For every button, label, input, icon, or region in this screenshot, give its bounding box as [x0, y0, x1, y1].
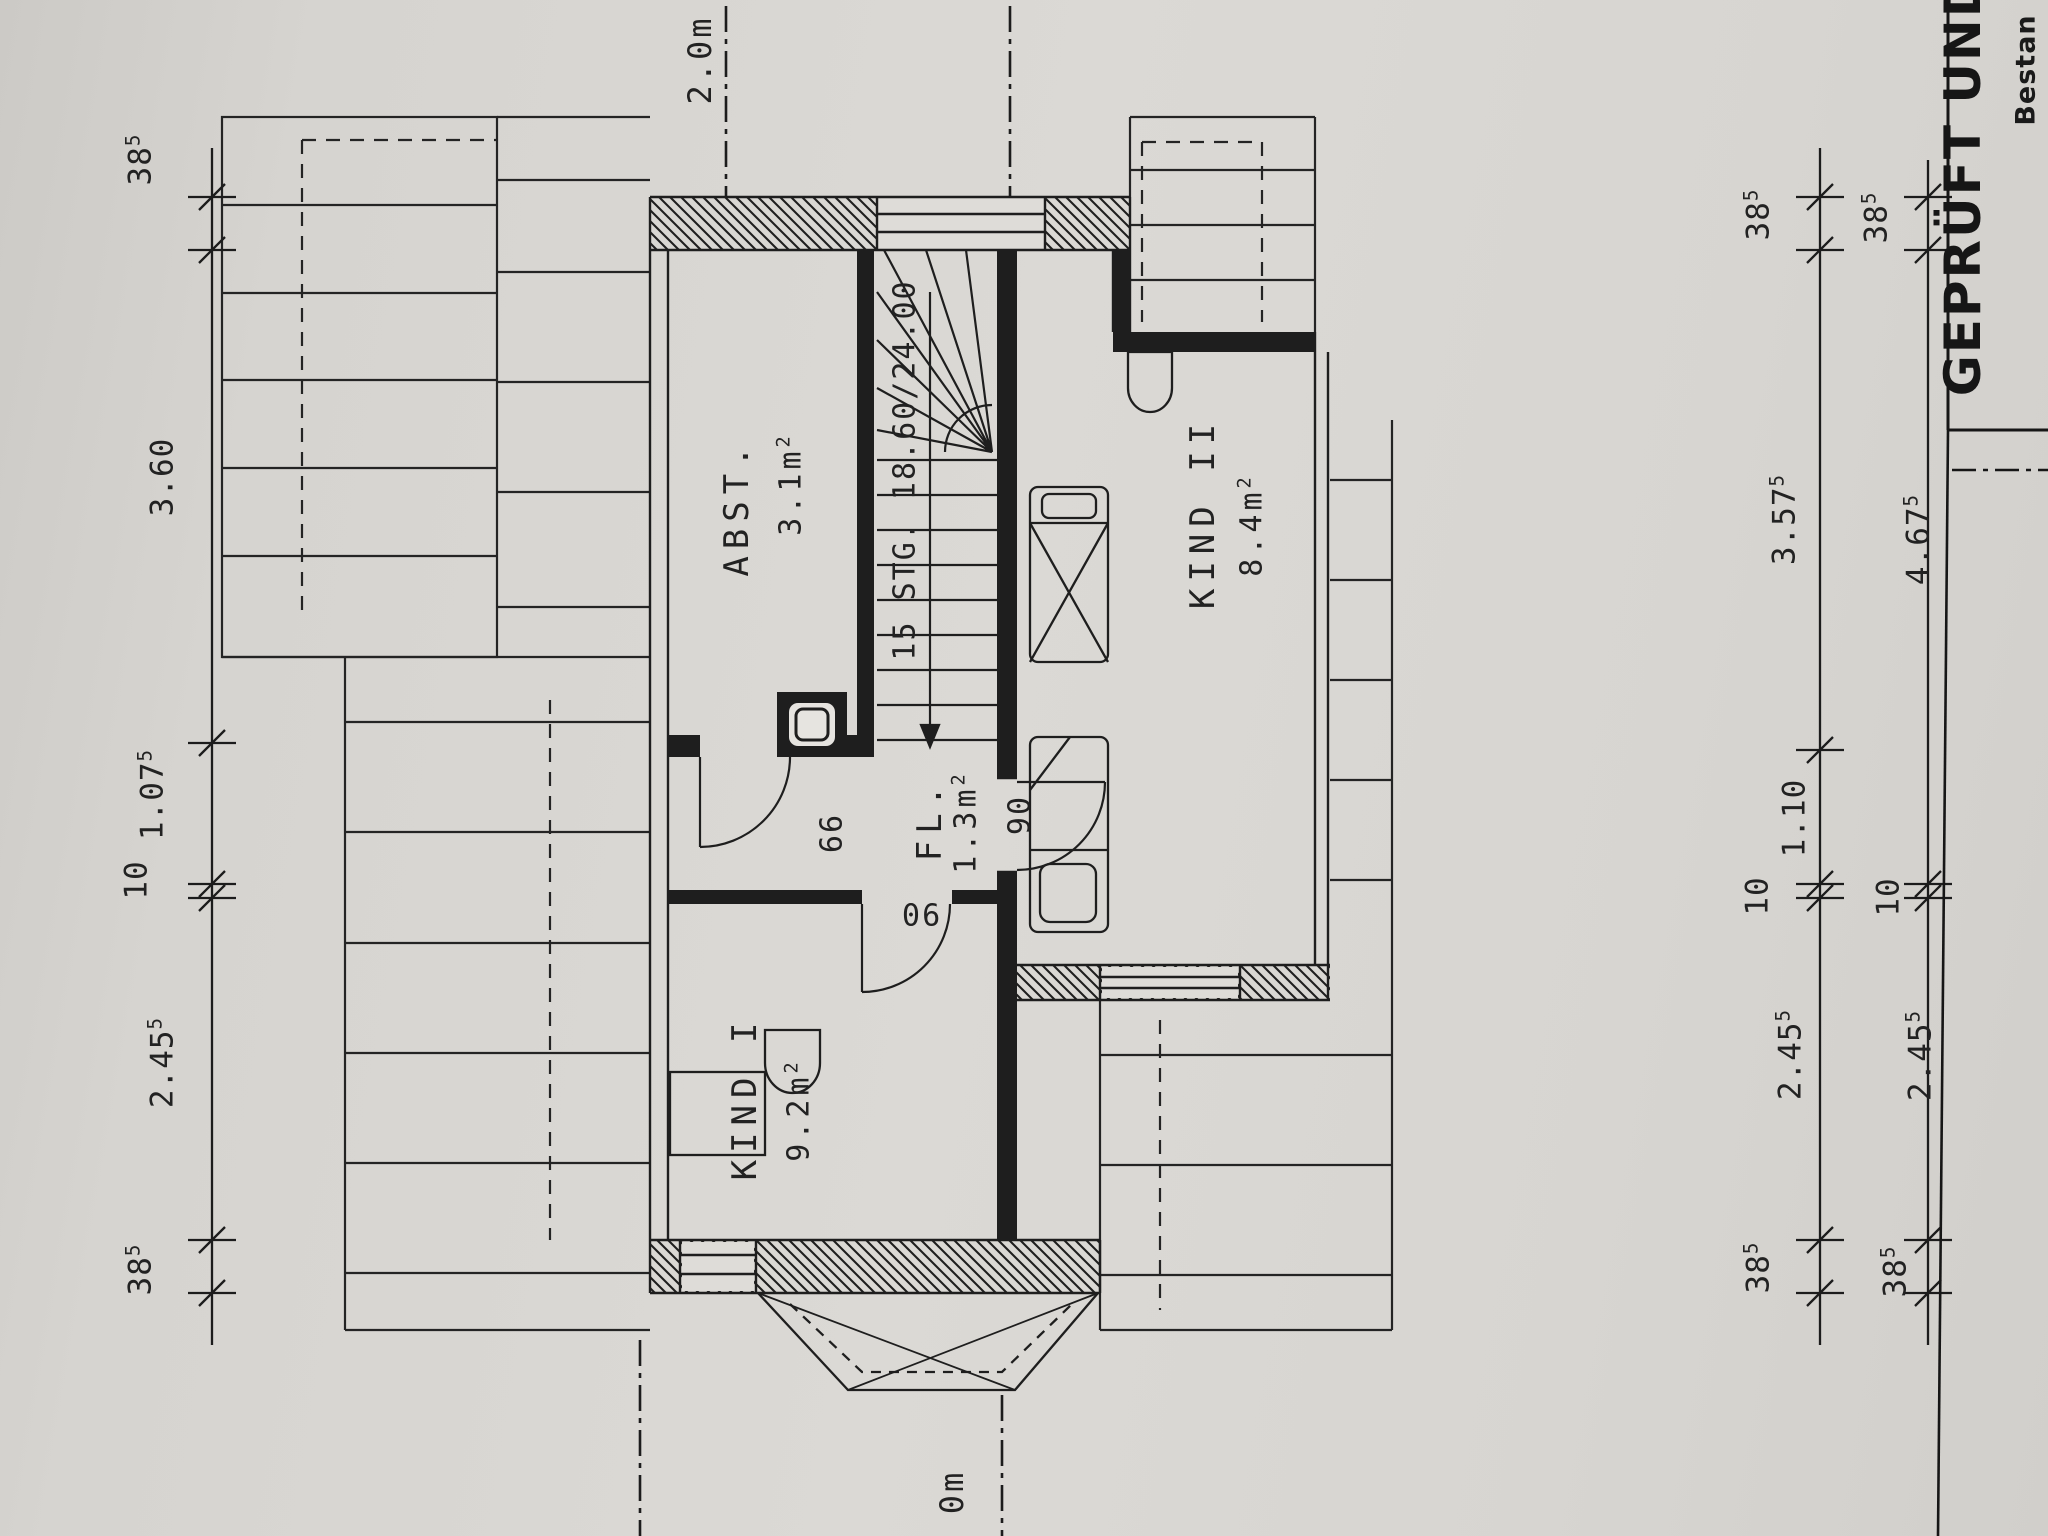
- dim-rout-2455: 2.455: [1901, 1011, 1938, 1101]
- dim-rout-385-top: 385: [1857, 193, 1894, 244]
- dim-rout-10: 10: [1869, 877, 1906, 916]
- dimension-chain-left: [188, 148, 236, 1345]
- roof-area-left: [222, 117, 650, 1330]
- dim-rout-4675: 4.675: [1899, 495, 1936, 585]
- room-area-kind1: 9.2m2: [782, 1062, 817, 1161]
- dim-left-385-bottom: 385: [121, 1245, 158, 1296]
- roof-area-right: [1100, 117, 1392, 1330]
- doors: [700, 757, 1105, 992]
- section-marker-top: 2.0m: [681, 15, 719, 104]
- room-label-kind2: KIND II: [1183, 417, 1223, 609]
- scanned-floor-plan: 385 3.60 1.075 10 2.455 385 385 3.575 1.…: [0, 0, 2048, 1536]
- dim-left-360: 3.60: [143, 438, 180, 517]
- dim-rin-385-bottom: 385: [1739, 1243, 1776, 1294]
- chimney: [777, 692, 847, 757]
- dim-left-10: 10: [117, 860, 154, 899]
- washbasin-kind2: [1128, 352, 1172, 412]
- dim-rout-385-bottom: 385: [1876, 1247, 1913, 1298]
- bed-2: [1030, 737, 1108, 932]
- room-area-kind2: 8.4m2: [1235, 477, 1270, 576]
- door-width-90-kind2: 90: [1003, 795, 1038, 835]
- room-label-kind1: KIND I: [725, 1016, 765, 1181]
- door-66-swing: [700, 757, 790, 847]
- stamp-geprueft: GEPRÜFT UND: [1934, 0, 1992, 396]
- room-label-fl: FL.: [910, 779, 950, 861]
- dimension-chain-right-inner: [1796, 148, 1844, 1345]
- dim-rin-385-top: 385: [1739, 190, 1776, 241]
- stamp-bestand: Bestan: [2011, 14, 2042, 125]
- stair-direction-arrow: [921, 725, 939, 747]
- room-area-fl: 1.3m2: [949, 774, 984, 873]
- stair-label: 15 STG. 18.60/24.00: [888, 279, 923, 660]
- room-area-abst: 3.1m2: [774, 436, 809, 535]
- dim-left-1075: 1.075: [133, 750, 170, 840]
- dim-rin-110: 1.10: [1775, 779, 1812, 858]
- dim-left-385-top: 385: [121, 135, 158, 186]
- dim-rin-10: 10: [1738, 876, 1775, 915]
- dim-rin-3575: 3.575: [1765, 475, 1802, 565]
- door-width-66: 66: [815, 813, 850, 853]
- bay-window: [758, 1293, 1098, 1390]
- door-width-90-kind1: 90: [900, 896, 940, 931]
- dim-rin-2455: 2.455: [1771, 1010, 1808, 1100]
- section-marker-bottom: 0m: [933, 1470, 971, 1515]
- bed-1: [1030, 487, 1108, 662]
- dim-left-2455: 2.455: [143, 1018, 180, 1108]
- room-label-abst: ABST.: [717, 439, 757, 576]
